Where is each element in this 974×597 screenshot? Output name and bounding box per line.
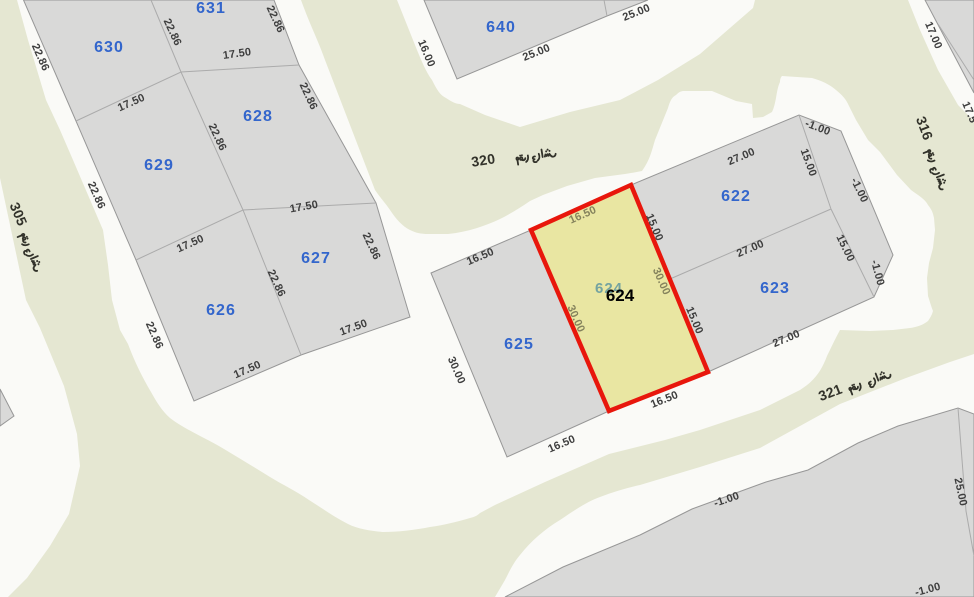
svg-text:626: 626 bbox=[206, 302, 236, 319]
svg-text:631: 631 bbox=[196, 0, 226, 17]
svg-text:624: 624 bbox=[606, 286, 635, 305]
svg-text:622: 622 bbox=[721, 188, 751, 205]
svg-text:628: 628 bbox=[243, 108, 273, 125]
svg-text:629: 629 bbox=[144, 157, 174, 174]
svg-text:623: 623 bbox=[760, 280, 790, 297]
svg-text:640: 640 bbox=[486, 19, 516, 36]
svg-text:630: 630 bbox=[94, 39, 124, 56]
svg-text:625: 625 bbox=[504, 336, 534, 353]
svg-text:627: 627 bbox=[301, 250, 331, 267]
